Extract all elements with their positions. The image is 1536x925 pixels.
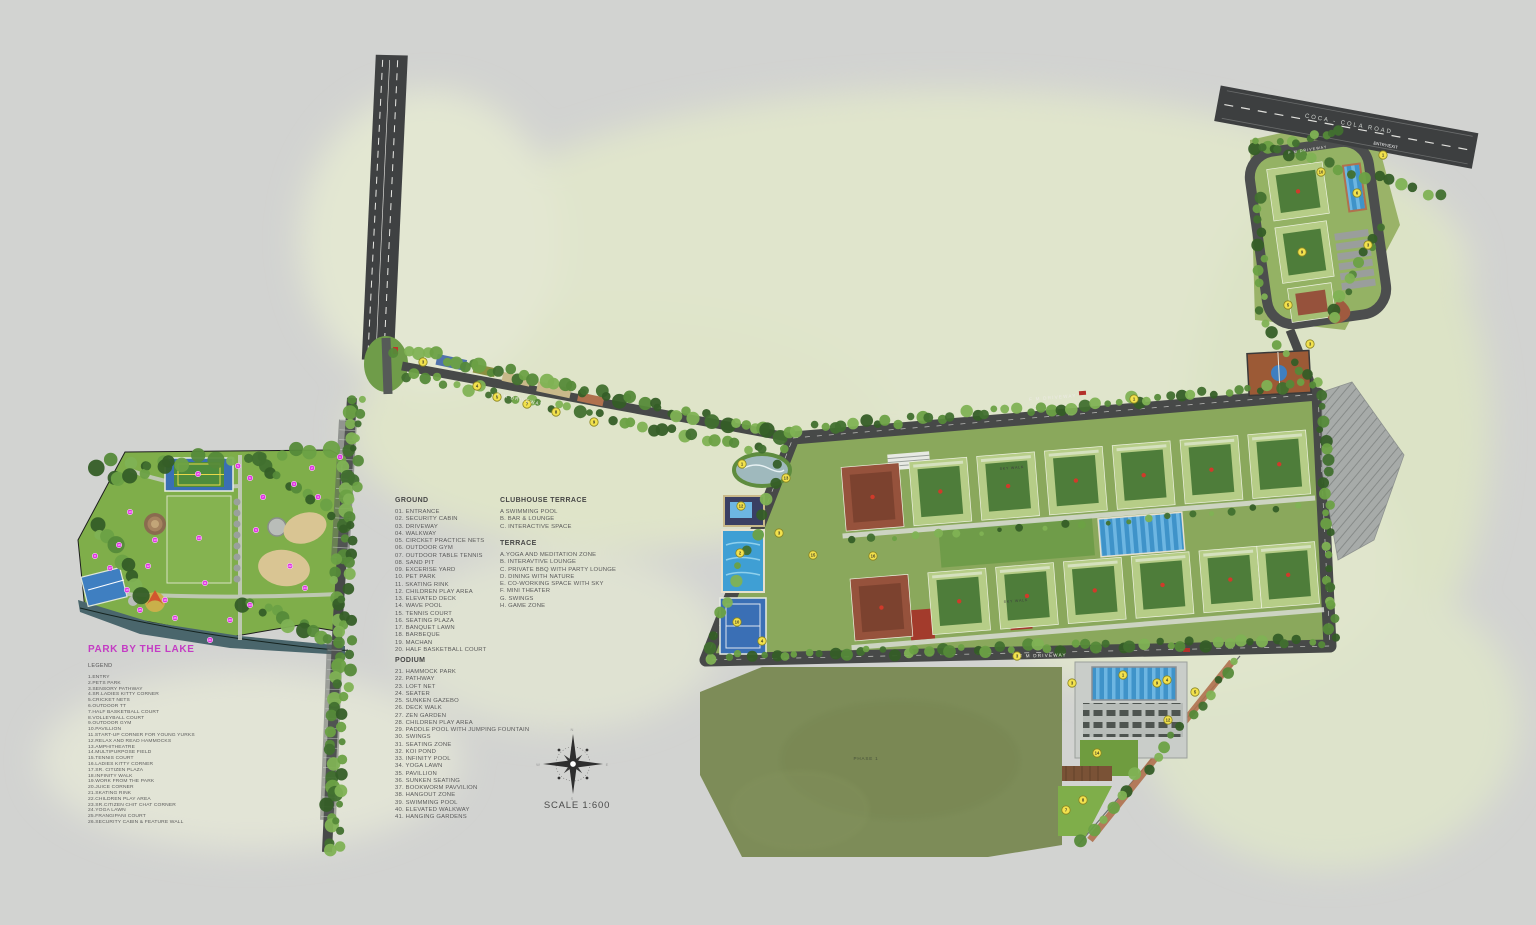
tree-icon — [656, 423, 669, 436]
tree-icon — [1228, 508, 1236, 516]
yellow-marker: 8 — [1079, 796, 1087, 804]
legend-item: 35. PAVILLION — [395, 771, 565, 778]
legend-item: 18. BARBEQUE — [395, 632, 515, 639]
tree-icon — [1166, 391, 1175, 400]
tree-icon — [335, 768, 347, 780]
legend-item: 19. MACHAN — [395, 640, 515, 647]
tree-icon — [1329, 312, 1340, 323]
tree-icon — [336, 708, 348, 720]
tree-icon — [88, 460, 105, 477]
tree-icon — [761, 652, 768, 659]
tree-icon — [350, 445, 357, 452]
yellow-marker: 6 — [1353, 189, 1361, 197]
pink-marker: 15 — [195, 471, 201, 477]
tree-icon — [352, 434, 360, 442]
tree-icon — [759, 422, 774, 437]
tree-icon — [454, 381, 461, 388]
tree-icon — [347, 395, 356, 404]
tree-icon — [346, 615, 357, 626]
pink-marker: 24 — [302, 585, 308, 591]
svg-text:21: 21 — [208, 638, 212, 642]
tree-icon — [760, 493, 773, 506]
tree-icon — [637, 422, 648, 433]
legend-item: 16. SEATING PLAZA — [395, 618, 515, 625]
legend-item: 37. BOOKWORM PAVVILION — [395, 785, 565, 792]
tree-icon — [133, 587, 150, 604]
tree-icon — [1209, 511, 1214, 516]
svg-text:16: 16 — [871, 554, 876, 559]
podium-title: PODIUM — [395, 657, 565, 664]
site-master-plan: COCA - COLA ROAD ENTRY/EXIT — [0, 0, 1536, 925]
tree-icon — [1345, 273, 1355, 283]
tree-icon — [1015, 524, 1023, 532]
campus-pool — [1098, 512, 1185, 557]
yellow-marker: 1 — [738, 460, 746, 468]
tree-icon — [1265, 326, 1277, 338]
park-amphitheatre — [144, 513, 166, 535]
tree-icon — [1138, 639, 1150, 651]
legend-item: 24. SEATER — [395, 691, 565, 698]
tree-icon — [770, 478, 781, 489]
tree-icon — [909, 645, 919, 655]
tree-icon — [1234, 385, 1243, 394]
svg-text:18: 18 — [125, 588, 129, 592]
tree-icon — [1175, 641, 1186, 652]
tree-icon — [1253, 215, 1261, 223]
legend-item: 22. PATHWAY — [395, 676, 565, 683]
tree-icon — [336, 801, 343, 808]
tree-icon — [1332, 634, 1340, 642]
tree-icon — [1359, 172, 1371, 184]
tree-icon — [742, 420, 752, 430]
tree-icon — [670, 410, 682, 422]
tree-icon — [1277, 138, 1284, 145]
yellow-marker: 16 — [869, 552, 877, 560]
tree-icon — [756, 509, 767, 520]
tree-icon — [281, 619, 295, 633]
tree-icon — [493, 366, 504, 377]
tree-icon — [1072, 640, 1080, 648]
tree-icon — [1319, 403, 1326, 410]
tree-icon — [1310, 130, 1319, 139]
tree-icon — [1251, 239, 1264, 252]
tree-icon — [273, 471, 281, 479]
tree-icon — [207, 452, 224, 469]
tree-icon — [1210, 391, 1218, 399]
yellow-marker: 3 — [775, 529, 783, 537]
tree-icon — [344, 664, 357, 677]
legend-item: 30. SWINGS — [395, 734, 565, 741]
tree-icon — [654, 404, 662, 412]
tree-icon — [1230, 658, 1237, 665]
yellow-marker: 14 — [1093, 749, 1101, 757]
car — [1079, 391, 1086, 395]
legend-item: 03. DRIVEWAY — [395, 524, 515, 531]
tree-icon — [1423, 190, 1434, 201]
tree-icon — [122, 558, 136, 572]
legend-item: D. DINING WITH NATURE — [500, 574, 650, 581]
tree-icon — [352, 482, 363, 493]
tree-icon — [344, 557, 355, 568]
legend-item: 07. OUTDOOR TABLE TENNIS — [395, 553, 515, 560]
tree-icon — [1345, 288, 1352, 295]
tree-icon — [1215, 676, 1223, 684]
tree-icon — [325, 726, 336, 737]
pink-marker: 12 — [145, 563, 151, 569]
tree-icon — [1206, 690, 1216, 700]
tree-icon — [704, 642, 717, 655]
tree-icon — [961, 405, 973, 417]
svg-text:17: 17 — [108, 566, 112, 570]
svg-text:26: 26 — [173, 616, 177, 620]
tree-icon — [709, 631, 718, 640]
legend-item: 13. ELEVATED DECK — [395, 596, 515, 603]
tree-icon — [806, 649, 814, 657]
tree-icon — [1189, 710, 1198, 719]
tree-icon — [1032, 638, 1044, 650]
legend-item: 29. PADDLE POOL WITH JUMPING FOUNTAIN — [395, 727, 565, 734]
svg-text:10: 10 — [128, 510, 132, 514]
tree-icon — [863, 646, 870, 653]
tree-icon — [752, 529, 764, 541]
pink-marker: 20 — [227, 617, 233, 623]
legend-item: B. INTERAVTIVE LOUNGE — [500, 559, 650, 566]
clubhouse-pool — [1092, 667, 1176, 700]
tree-icon — [336, 827, 344, 835]
tree-icon — [1164, 513, 1170, 519]
yellow-marker: 1 — [1119, 671, 1127, 679]
legend-item: A.YOGA AND MEDITATION ZONE — [500, 552, 650, 559]
tree-icon — [420, 373, 431, 384]
tree-icon — [1322, 542, 1331, 551]
park-legend-list: 1.ENTRY2.PETS PARK3.SENSORY PATHWAY4.SR.… — [88, 675, 288, 826]
tree-icon — [1317, 416, 1329, 428]
tree-icon — [344, 682, 354, 692]
tree-icon — [726, 654, 733, 661]
tree-icon — [320, 499, 333, 512]
clubhouse-terrace-list: A SWIMMING POOLB. BAR & LOUNGEC. INTERAC… — [500, 509, 640, 531]
tree-icon — [1167, 732, 1174, 739]
tree-icon — [1324, 157, 1334, 167]
legend-item: 23. LOFT NET — [395, 684, 565, 691]
tree-icon — [355, 420, 362, 427]
pink-marker: 17 — [107, 565, 113, 571]
tree-icon — [346, 521, 354, 529]
tree-icon — [1088, 824, 1101, 837]
pink-marker: 4 — [315, 494, 321, 500]
tree-icon — [1286, 380, 1295, 389]
park-legend-block: PARK BY THE LAKE LEGEND 1.ENTRY2.PETS PA… — [88, 644, 288, 826]
legend-item: 11. SKATING RINK — [395, 582, 515, 589]
tree-icon — [1235, 634, 1247, 646]
tree-icon — [388, 348, 398, 358]
tree-icon — [1322, 509, 1329, 516]
tree-icon — [791, 651, 798, 658]
tree-icon — [867, 534, 875, 542]
tree-icon — [1353, 257, 1364, 268]
tree-icon — [729, 438, 739, 448]
ground-title: GROUND — [395, 497, 515, 504]
tree-icon — [1079, 400, 1091, 412]
legend-item: 20. HALF BASKETBALL COURT — [395, 647, 515, 654]
pink-marker: 1 — [337, 454, 343, 460]
pink-marker: 6 — [247, 475, 253, 481]
tree-icon — [822, 423, 830, 431]
tree-icon — [1273, 506, 1280, 513]
tree-icon — [709, 434, 721, 446]
tree-icon — [343, 493, 354, 504]
tree-icon — [526, 373, 539, 386]
yellow-marker: 2 — [736, 549, 744, 557]
legend-item: G. SWINGS — [500, 596, 650, 603]
tree-icon — [1325, 582, 1335, 592]
tree-icon — [1333, 165, 1343, 175]
entrance-drive — [386, 338, 388, 394]
park-legend-title: PARK BY THE LAKE — [88, 644, 288, 655]
pink-marker: 14 — [196, 535, 202, 541]
tree-icon — [162, 455, 174, 467]
tree-icon — [1011, 403, 1022, 414]
tree-icon — [1258, 143, 1266, 151]
pink-marker: 25 — [137, 607, 143, 613]
tree-icon — [1325, 565, 1332, 572]
tree-icon — [1297, 378, 1305, 386]
park-plaza-circle — [268, 518, 286, 536]
tree-icon — [1330, 614, 1339, 623]
yellow-marker: 4 — [473, 382, 481, 390]
tree-icon — [790, 425, 802, 437]
tree-icon — [1395, 178, 1407, 190]
yellow-marker: 1 — [1379, 151, 1387, 159]
tree-icon — [1008, 646, 1015, 653]
tree-icon — [1145, 515, 1153, 523]
tree-icon — [1253, 265, 1264, 276]
tree-icon — [337, 596, 345, 604]
yellow-marker: 4 — [758, 637, 766, 645]
compass-e: E — [606, 762, 609, 767]
tree-icon — [1309, 639, 1316, 646]
tree-icon — [1291, 359, 1299, 367]
legend-item: 26.SECURITY CABIN & FEATURE WALL — [88, 820, 288, 826]
tree-icon — [302, 445, 316, 459]
tree-icon — [1295, 502, 1301, 508]
legend-item: 17. BANQUET LAWN — [395, 625, 515, 632]
tree-icon — [1347, 170, 1356, 179]
tree-icon — [602, 392, 611, 401]
legend-item: C. INTERACTIVE SPACE — [500, 524, 640, 531]
tree-icon — [1316, 390, 1327, 401]
tree-icon — [337, 755, 347, 765]
legend-item: C. PRIVATE BBQ WITH PARTY LOUNGE — [500, 567, 650, 574]
yellow-marker: 4 — [1163, 676, 1171, 684]
legend-item: 25. SUNKEN GAZEBO — [395, 698, 565, 705]
tree-icon — [347, 635, 357, 645]
tree-icon — [1327, 528, 1335, 536]
legend-item: 33. INFINITY POOL — [395, 756, 565, 763]
tree-icon — [705, 414, 720, 429]
tree-icon — [1157, 638, 1164, 645]
tree-icon — [952, 530, 960, 538]
tree-icon — [892, 536, 897, 541]
yellow-marker: 10 — [1317, 168, 1325, 176]
tree-icon — [265, 604, 273, 612]
svg-text:11: 11 — [203, 581, 206, 585]
yellow-marker: 9 — [590, 418, 598, 426]
yellow-marker: 3 — [1306, 340, 1314, 348]
yellow-marker: 3 — [1364, 241, 1372, 249]
tree-icon — [353, 455, 364, 466]
pink-marker: 9 — [253, 527, 259, 533]
tree-icon — [1197, 387, 1206, 396]
legend-item: B. BAR & LOUNGE — [500, 516, 640, 523]
tree-icon — [104, 453, 118, 467]
clubhouse-terrace-block: CLUBHOUSE TERRACE A SWIMMING POOLB. BAR … — [500, 497, 640, 531]
tree-icon — [1226, 389, 1234, 397]
legend-item: 32. KOI POND — [395, 749, 565, 756]
tree-icon — [835, 421, 846, 432]
tree-icon — [345, 419, 355, 429]
tree-icon — [1280, 639, 1289, 648]
tree-icon — [1200, 640, 1212, 652]
tree-icon — [1158, 741, 1170, 753]
tree-icon — [143, 462, 151, 470]
tree-icon — [326, 710, 338, 722]
tree-icon — [91, 517, 106, 532]
svg-text:12: 12 — [146, 564, 150, 568]
legend-item: 31. SEATING ZONE — [395, 742, 565, 749]
tree-icon — [1154, 753, 1163, 762]
svg-text:12: 12 — [739, 504, 744, 509]
clubhouse-terrace-title: CLUBHOUSE TERRACE — [500, 497, 640, 504]
tree-icon — [1320, 518, 1332, 530]
svg-text:25: 25 — [138, 608, 142, 612]
tree-icon — [1333, 290, 1345, 302]
tree-icon — [1295, 367, 1303, 375]
svg-text:13: 13 — [784, 476, 789, 481]
podium-block: PODIUM 21. HAMMOCK PARK22. PATHWAY23. LO… — [395, 657, 565, 821]
tree-icon — [343, 405, 357, 419]
yellow-marker: 12 — [737, 502, 745, 510]
pink-marker: 21 — [207, 637, 213, 643]
podium-list: 21. HAMMOCK PARK22. PATHWAY23. LOFT NET2… — [395, 669, 565, 821]
legend-item: 41. HANGING GARDENS — [395, 814, 565, 821]
tree-icon — [1261, 293, 1268, 300]
tree-icon — [841, 649, 853, 661]
tree-icon — [140, 469, 150, 479]
tree-icon — [730, 575, 742, 587]
legend-item: 27. ZEN GARDEN — [395, 713, 565, 720]
tree-icon — [1244, 385, 1251, 392]
legend-item: 28. CHILDREN PLAY AREA — [395, 720, 565, 727]
tree-icon — [1102, 640, 1110, 648]
tree-icon — [1126, 519, 1131, 524]
yellow-marker: 9 — [1298, 248, 1306, 256]
tree-icon — [1043, 644, 1052, 653]
tree-icon — [608, 416, 617, 425]
tree-icon — [1078, 521, 1086, 529]
tree-icon — [995, 641, 1006, 652]
legend-item: A SWIMMING POOL — [500, 509, 640, 516]
tree-icon — [1168, 642, 1175, 649]
legend-item: 02. SECURITY CABIN — [395, 516, 515, 523]
tree-icon — [1255, 192, 1267, 204]
svg-text:14: 14 — [197, 536, 201, 540]
tree-icon — [1065, 403, 1078, 416]
tree-icon — [1118, 791, 1128, 801]
legend-item: 26. DECK WALK — [395, 705, 565, 712]
tree-icon — [1123, 641, 1135, 653]
yellow-marker: 1 — [1130, 395, 1138, 403]
tree-icon — [747, 651, 758, 662]
ground-list: 01. ENTRANCE02. SECURITY CABIN03. DRIVEW… — [395, 509, 515, 654]
tree-icon — [1089, 398, 1101, 410]
tree-icon — [1252, 138, 1259, 145]
tree-icon — [923, 413, 933, 423]
tree-icon — [1318, 641, 1325, 648]
pink-marker: 13 — [152, 537, 158, 543]
tree-icon — [1324, 467, 1334, 477]
yellow-marker: 13 — [782, 474, 790, 482]
svg-text:12: 12 — [1166, 718, 1171, 723]
tree-icon — [439, 381, 447, 389]
legend-item: 05. CIRCKET PRACTICE NETS — [395, 538, 515, 545]
pink-marker: 26 — [172, 615, 178, 621]
legend-item: 21. HAMMOCK PARK — [395, 669, 565, 676]
tree-icon — [226, 456, 236, 466]
tree-icon — [332, 817, 339, 824]
tree-icon — [1261, 380, 1272, 391]
tree-icon — [1061, 520, 1069, 528]
tree-icon — [586, 409, 593, 416]
svg-text:19: 19 — [163, 598, 167, 602]
legend-item: 01. ENTRANCE — [395, 509, 515, 516]
tree-icon — [430, 346, 443, 359]
tree-icon — [1250, 504, 1257, 511]
tree-icon — [433, 373, 441, 381]
tree-icon — [506, 364, 517, 375]
legend-item: 04. WALKWAY — [395, 531, 515, 538]
tree-icon — [1316, 426, 1323, 433]
tree-icon — [323, 634, 333, 644]
tree-icon — [1104, 400, 1111, 407]
yellow-marker: 3 — [1068, 679, 1076, 687]
tree-icon — [686, 412, 699, 425]
legend-item: F. MINI THEATER — [500, 588, 650, 595]
legend-item: 39. SWIMMING POOL — [395, 800, 565, 807]
svg-text:15: 15 — [196, 472, 200, 476]
legend-item: 14. WAVE POOL — [395, 603, 515, 610]
tree-icon — [1383, 174, 1394, 185]
tree-icon — [958, 644, 965, 651]
tree-icon — [1074, 834, 1087, 847]
tree-icon — [1256, 635, 1268, 647]
tree-icon — [811, 421, 819, 429]
tree-icon — [331, 658, 346, 673]
legend-item: 12. CHILDREN PLAY AREA — [395, 589, 515, 596]
tree-icon — [329, 576, 338, 585]
tree-icon — [1000, 405, 1009, 414]
tree-icon — [335, 785, 348, 798]
legend-item: 08. SAND PIT — [395, 560, 515, 567]
pink-marker: 8 — [92, 553, 98, 559]
park-legend-subtitle: LEGEND — [88, 663, 288, 669]
phase1-field — [700, 667, 1062, 857]
ground-legend-block: GROUND 01. ENTRANCE02. SECURITY CABIN03.… — [395, 497, 515, 654]
tree-icon — [359, 396, 366, 403]
tree-icon — [1306, 153, 1317, 164]
svg-text:22: 22 — [288, 564, 292, 568]
tree-icon — [1090, 642, 1102, 654]
